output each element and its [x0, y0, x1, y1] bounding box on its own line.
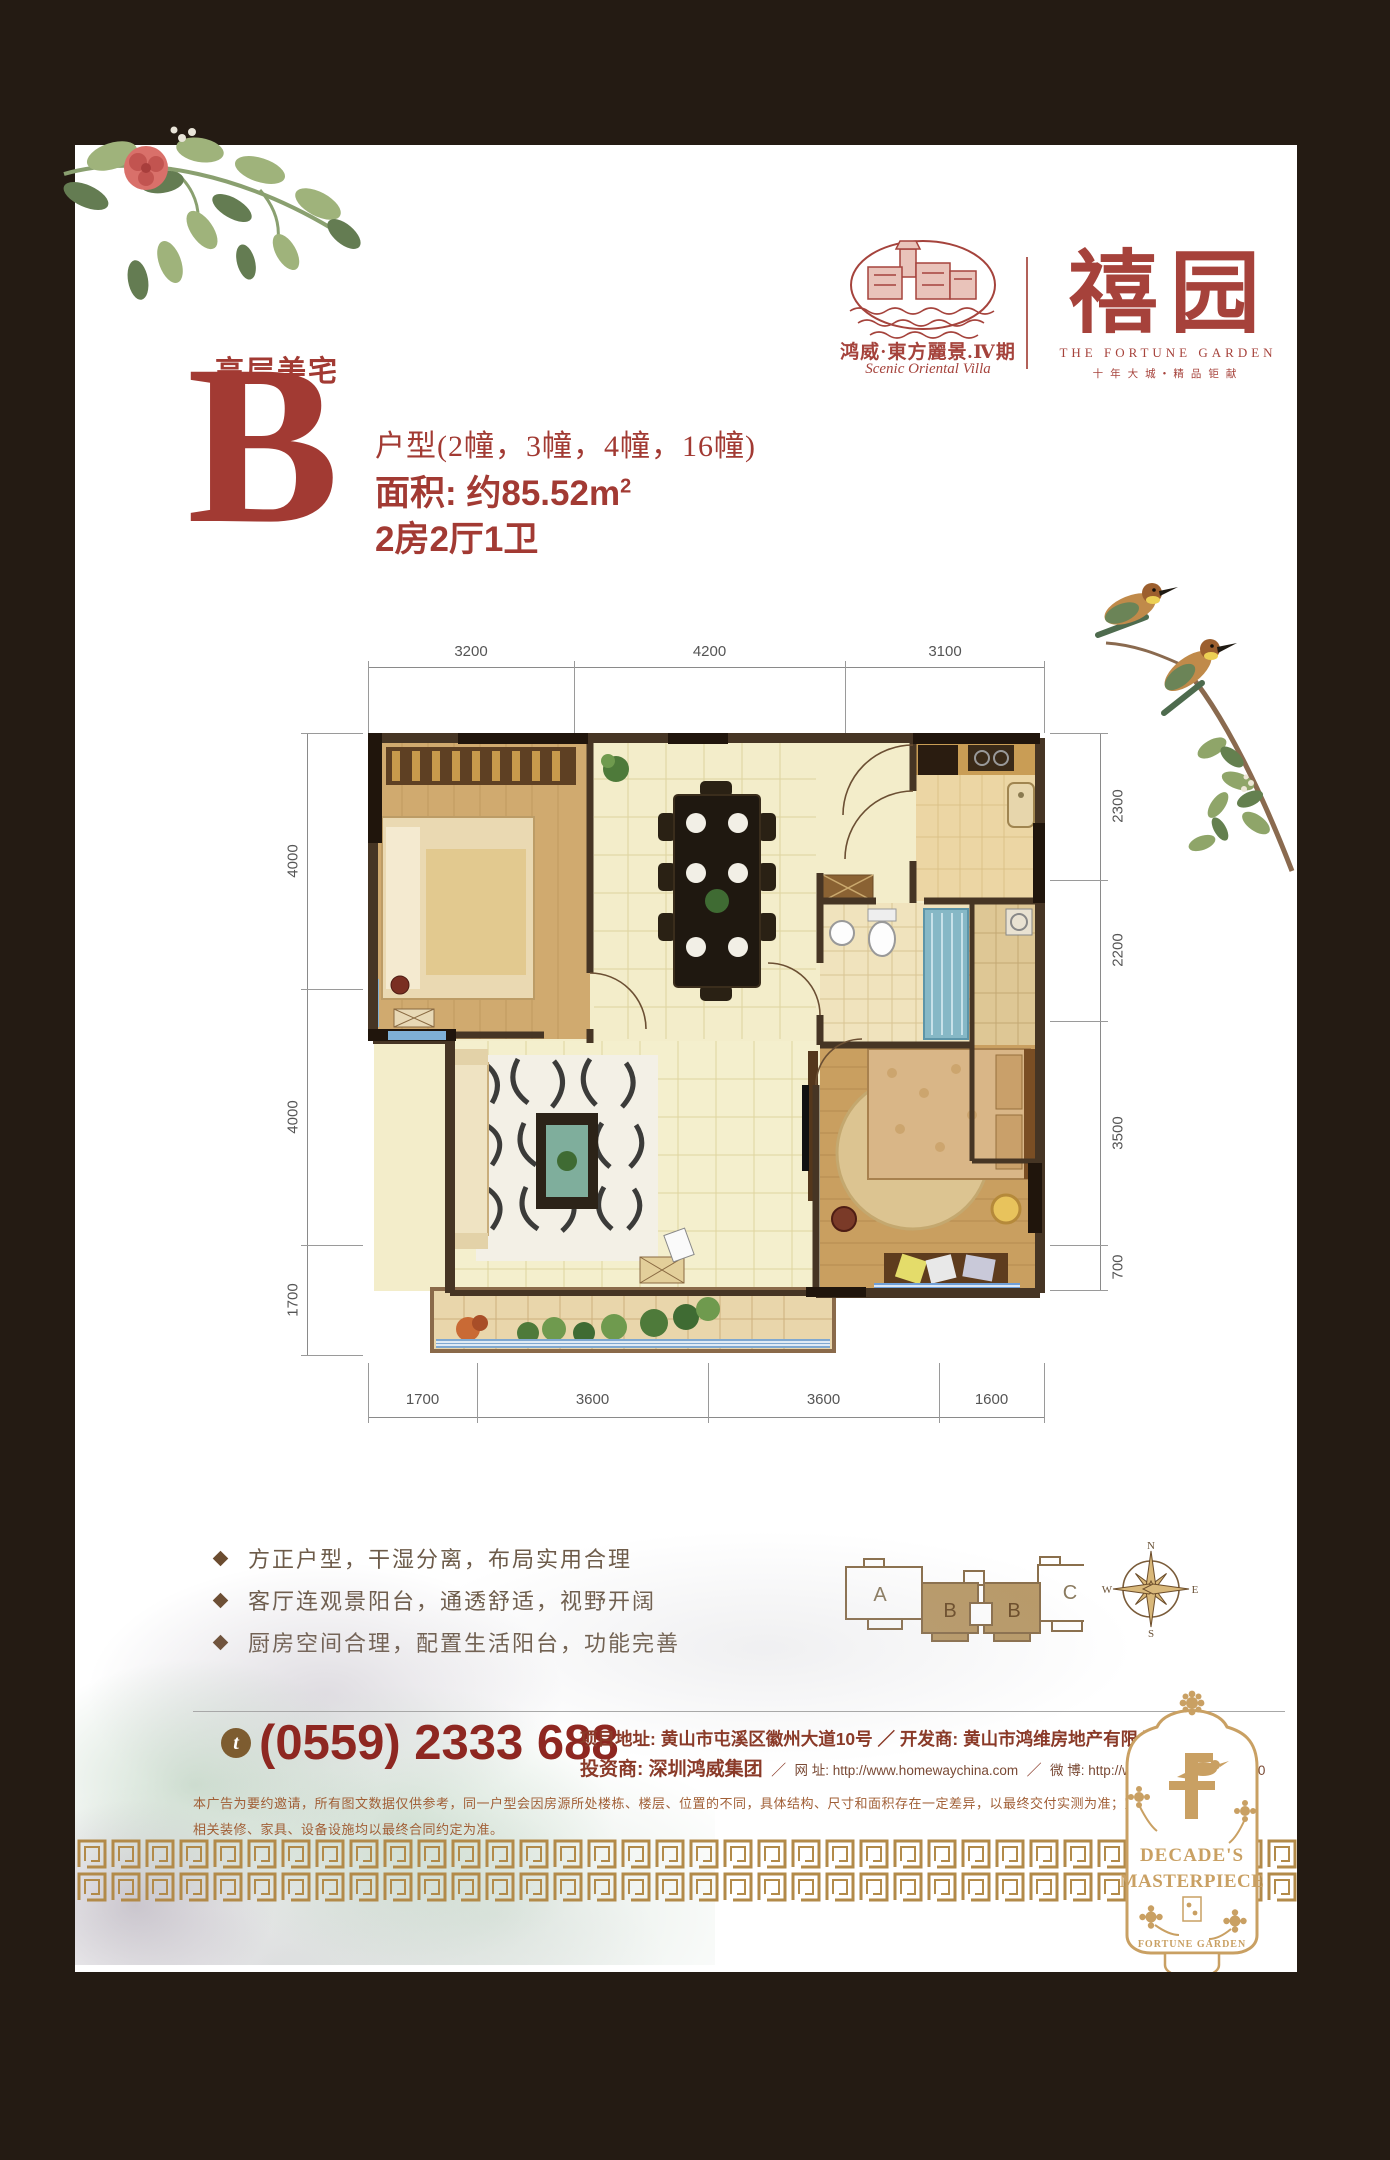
separator: ／ [1023, 1762, 1046, 1779]
dim-label: 3500 [1110, 1116, 1127, 1149]
dim-label: 3600 [477, 1391, 708, 1408]
bird-icon [1158, 639, 1237, 713]
feature-item: 客厅连观景阳台，通透舒适，视野开阔 [215, 1579, 680, 1621]
compass-s: S [1148, 1628, 1154, 1639]
building-key-plan: A B B C [838, 1543, 1084, 1647]
dim-label: 4200 [574, 643, 845, 660]
keyplan-unit-b1: B [943, 1600, 956, 1622]
dim-label: 3100 [845, 643, 1045, 660]
diamond-bullet-icon [213, 1634, 229, 1650]
dim-label: 1700 [368, 1391, 477, 1408]
phone-number: (0559) 2333 688 [259, 1715, 619, 1771]
compass-n: N [1147, 1540, 1155, 1552]
feature-text: 客厅连观景阳台，通透舒适，视野开阔 [248, 1584, 656, 1616]
unit-area-sup: 2 [620, 475, 631, 497]
unit-area: 面积: 约85.52m2 [375, 465, 631, 516]
kitchen [916, 741, 1037, 901]
dim-label: 1700 [285, 1283, 302, 1316]
feature-text: 厨房空间合理，配置生活阳台，功能完善 [248, 1626, 680, 1658]
diamond-bullet-icon [213, 1592, 229, 1608]
floral-branch-decoration [50, 112, 370, 327]
estate-logo-subtitle: Scenic Oriental Villa [823, 361, 1033, 378]
diamond-bullet-icon [213, 1550, 229, 1566]
unit-buildings: 户型(2幢，3幢，4幢，16幢) [375, 421, 756, 465]
dim-label: 2200 [1110, 933, 1127, 966]
bedroom-master [820, 1045, 1037, 1292]
investor-text: 投资商: 深圳鸿威集团 [580, 1759, 763, 1780]
unit-layout: 2房2厅1卫 [375, 511, 538, 562]
garden-logo-english: THE FORTUNE GARDEN [1040, 345, 1296, 361]
dim-label: 3200 [368, 643, 574, 660]
bedroom-secondary [370, 741, 590, 1039]
separator: ／ [767, 1762, 790, 1779]
dim-label: 4000 [285, 1100, 302, 1133]
landscape-balcony [432, 1289, 834, 1351]
unit-area-text: 面积: 约85.52m [375, 474, 620, 513]
flower-blossom-icon [124, 146, 168, 190]
compass-w: W [1102, 1584, 1113, 1596]
phone-icon: t [221, 1728, 251, 1758]
ornament-word-2: MASTERPIECE [1120, 1871, 1265, 1892]
project-address-line: 项目地址: 黄山市屯溪区徽州大道10号 ／ 开发商: 黄山市鸿维房地产有限公司 [580, 1726, 1173, 1751]
unit-letter: B [187, 341, 339, 551]
feature-item: 方正户型，干湿分离，布局实用合理 [215, 1537, 680, 1579]
floor-plan-rendering [368, 733, 1045, 1355]
dim-label: 4000 [285, 844, 302, 877]
plan-window [388, 1031, 446, 1040]
logo-divider [1026, 257, 1028, 369]
estate-logo-emblem-icon [838, 233, 1008, 351]
bird-icon [1098, 583, 1178, 635]
website-text: 网 址: http://www.homewaychina.com [795, 1763, 1019, 1778]
poster-page: 鸿威·東方麗景.Ⅳ期 Scenic Oriental Villa 禧园 THE … [75, 145, 1297, 1972]
masterpiece-ornament: DECADE'S MASTERPIECE FORTUNE GARDEN [1103, 1685, 1281, 1972]
dim-label: 1600 [939, 1391, 1044, 1408]
feature-list: 方正户型，干湿分离，布局实用合理 客厅连观景阳台，通透舒适，视野开阔 厨房空间合… [215, 1537, 680, 1663]
estate-logo-name: 鸿威·東方麗景.Ⅳ期 [823, 337, 1033, 364]
keyplan-unit-c: C [1063, 1582, 1077, 1604]
garden-logo-tagline: 十年大城•精品钜献 [1040, 366, 1296, 381]
dim-label: 3600 [708, 1391, 939, 1408]
garden-logo-name: 禧园 [1047, 249, 1293, 339]
keyplan-unit-b2: B [1007, 1600, 1020, 1622]
compass-e: E [1192, 1584, 1199, 1596]
birds-on-branch-decoration [1060, 543, 1297, 873]
ornament-word-3: FORTUNE GARDEN [1138, 1939, 1246, 1950]
ornament-word-1: DECADE'S [1140, 1845, 1244, 1866]
dim-label: 2300 [1110, 789, 1127, 822]
feature-text: 方正户型，干湿分离，布局实用合理 [248, 1542, 632, 1574]
living-room [450, 1041, 818, 1291]
feature-item: 厨房空间合理，配置生活阳台，功能完善 [215, 1621, 680, 1663]
compass-rose-icon: N E S W [1101, 1539, 1201, 1639]
dim-label: 700 [1110, 1254, 1127, 1279]
keyplan-unit-a: A [873, 1584, 887, 1606]
